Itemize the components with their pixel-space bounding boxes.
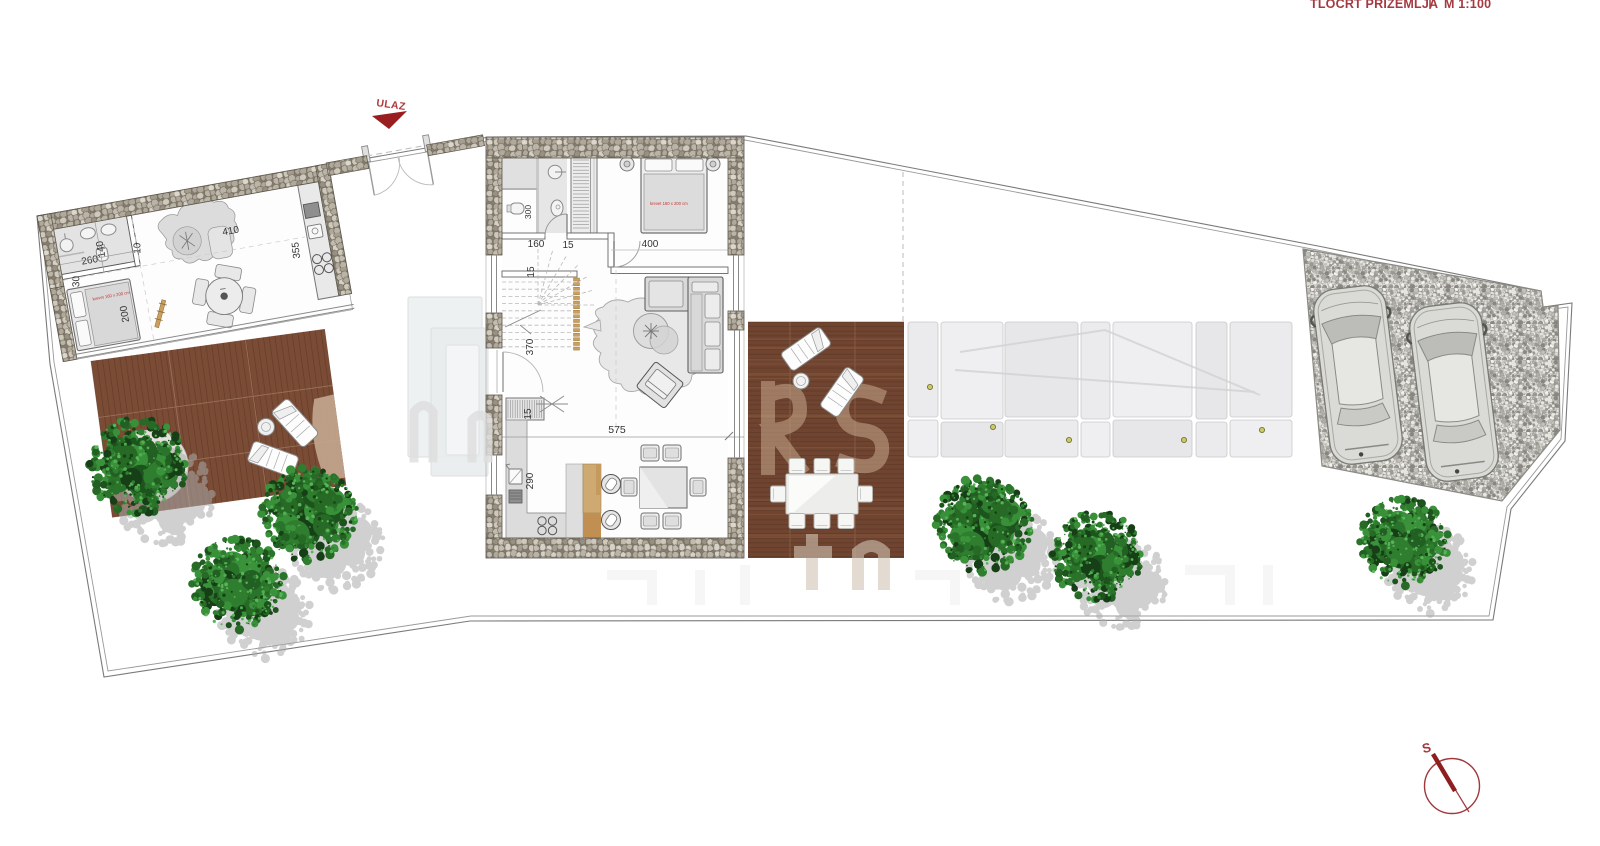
svg-text:300: 300 <box>523 205 533 219</box>
svg-text:10: 10 <box>132 242 143 254</box>
svg-text:TLOCRT PRIZEMLJA: TLOCRT PRIZEMLJA <box>1310 0 1438 11</box>
svg-text:15: 15 <box>523 408 534 420</box>
svg-text:575: 575 <box>608 424 626 436</box>
svg-text:370: 370 <box>525 338 536 355</box>
svg-text:400: 400 <box>642 239 659 250</box>
svg-text:15: 15 <box>562 240 574 251</box>
svg-text:160: 160 <box>528 239 545 250</box>
svg-text:krevet 160 x 200 cm: krevet 160 x 200 cm <box>650 201 688 206</box>
svg-text:M 1:100: M 1:100 <box>1444 0 1491 11</box>
svg-text:290: 290 <box>525 472 536 489</box>
svg-text:355: 355 <box>290 241 303 259</box>
svg-text:15: 15 <box>526 266 537 278</box>
